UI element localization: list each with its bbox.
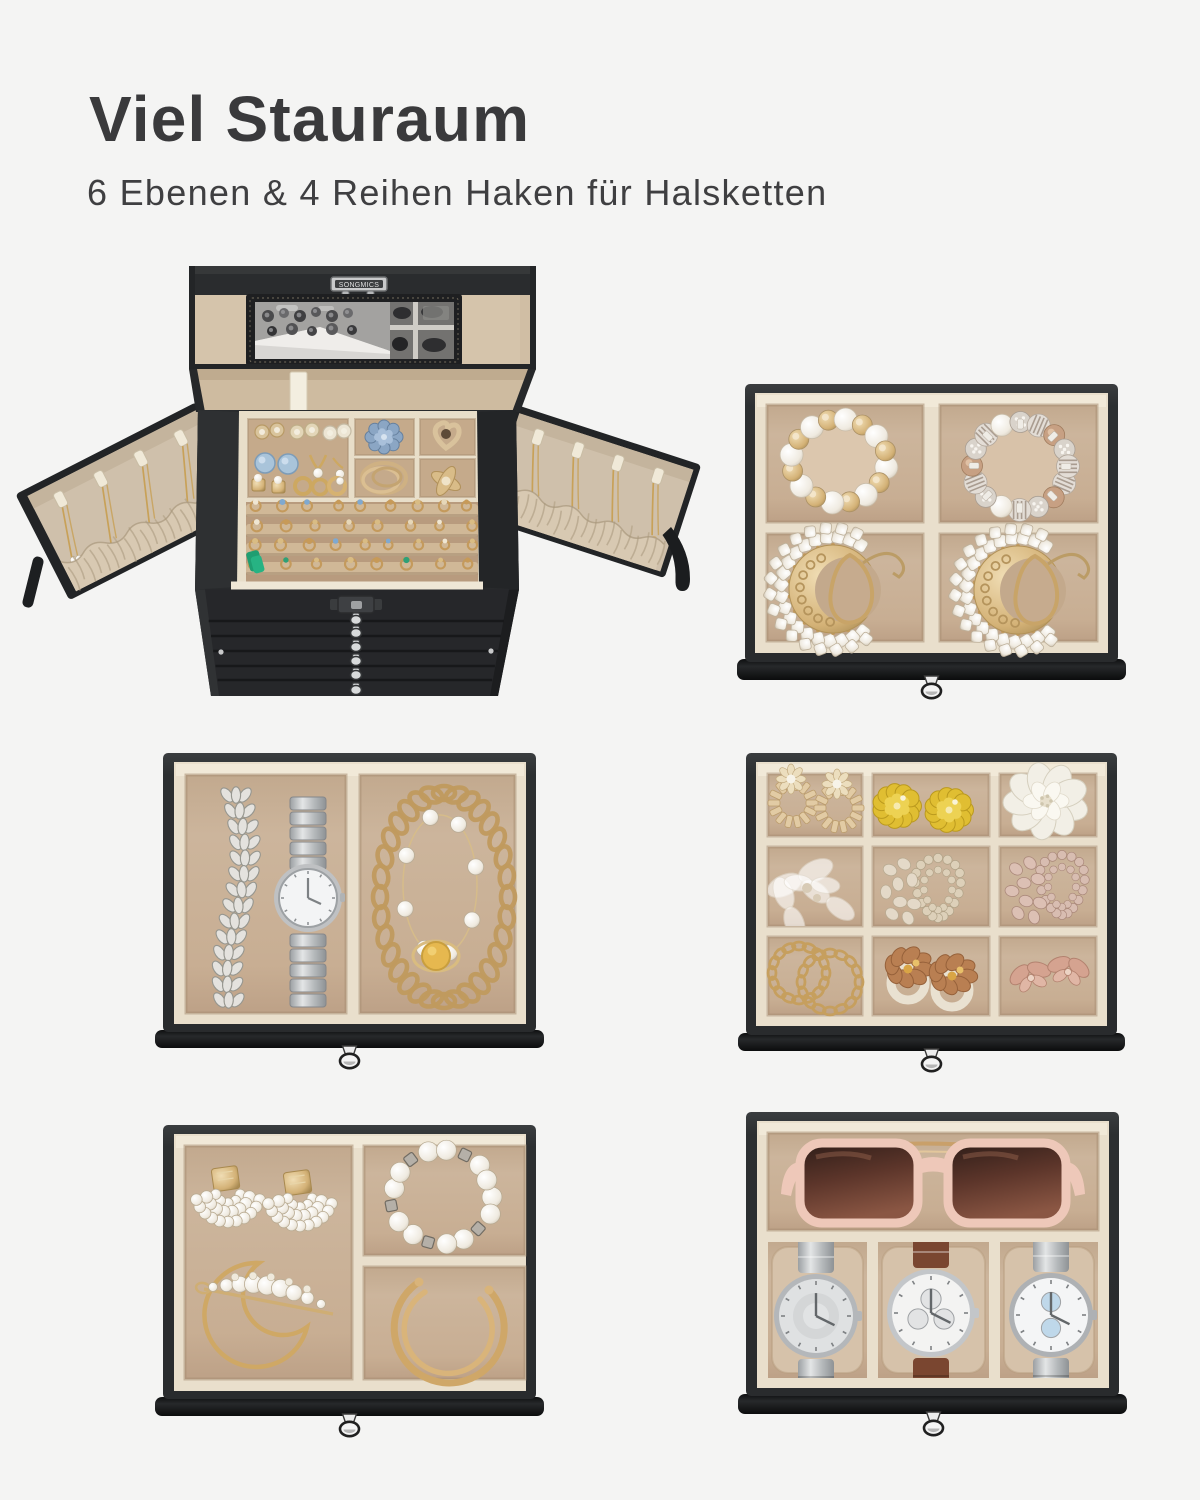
svg-text:SONGMICS: SONGMICS — [339, 282, 380, 289]
